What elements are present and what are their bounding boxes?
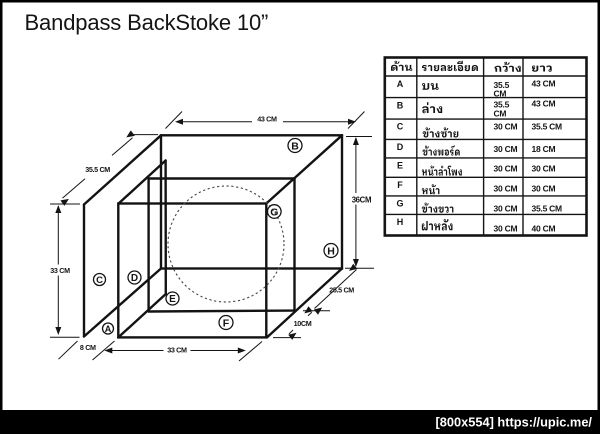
svg-text:G: G [270, 206, 278, 218]
svg-text:30 CM: 30 CM [494, 203, 518, 213]
svg-text:33 CM: 33 CM [167, 346, 187, 355]
svg-text:H: H [327, 245, 335, 257]
svg-text:CM: CM [494, 109, 507, 119]
svg-text:10CM: 10CM [294, 319, 312, 328]
svg-text:30 CM: 30 CM [494, 164, 518, 174]
svg-text:33 CM: 33 CM [50, 266, 70, 275]
svg-text:G: G [396, 199, 403, 209]
svg-text:C: C [96, 275, 103, 286]
svg-text:30 CM: 30 CM [494, 184, 518, 194]
svg-text:A: A [105, 324, 112, 334]
svg-text:30 CM: 30 CM [494, 144, 518, 154]
svg-text:18 CM: 18 CM [532, 144, 556, 154]
svg-text:A: A [397, 79, 404, 89]
svg-text:CM: CM [494, 89, 507, 99]
svg-text:30 CM: 30 CM [532, 164, 556, 174]
svg-text:30 CM: 30 CM [494, 223, 518, 233]
svg-text:B: B [397, 101, 404, 111]
svg-text:43 CM: 43 CM [532, 99, 556, 109]
svg-text:Bandpass BackStoke 10”: Bandpass BackStoke 10” [25, 10, 269, 35]
svg-text:25.5 CM: 25.5 CM [329, 286, 354, 295]
svg-text:E: E [397, 161, 403, 171]
svg-text:30 CM: 30 CM [532, 184, 556, 194]
svg-text:D: D [131, 273, 138, 284]
svg-text:8 CM: 8 CM [80, 343, 96, 352]
svg-text:36CM: 36CM [352, 195, 371, 204]
svg-text:[800x554] https://upic.me/: [800x554] https://upic.me/ [436, 415, 593, 430]
svg-text:40 CM: 40 CM [532, 223, 556, 233]
svg-text:F: F [397, 180, 403, 190]
svg-text:D: D [397, 142, 404, 152]
svg-text:B: B [291, 140, 299, 152]
svg-text:43 CM: 43 CM [532, 78, 556, 88]
svg-text:35.5 CM: 35.5 CM [532, 203, 563, 213]
svg-text:35.5 CM: 35.5 CM [85, 165, 110, 174]
svg-text:C: C [397, 122, 404, 132]
svg-text:H: H [397, 217, 404, 227]
svg-text:E: E [169, 294, 176, 305]
svg-text:43 CM: 43 CM [257, 114, 277, 123]
svg-text:35.5 CM: 35.5 CM [532, 122, 563, 132]
svg-text:30 CM: 30 CM [494, 122, 518, 132]
svg-text:F: F [223, 317, 230, 329]
